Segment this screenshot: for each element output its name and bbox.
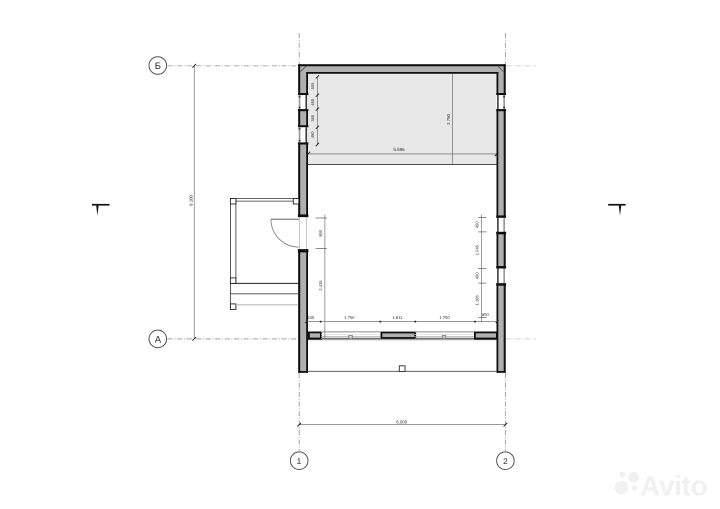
svg-text:365: 365 bbox=[310, 114, 315, 122]
svg-text:Avito: Avito bbox=[640, 470, 708, 501]
svg-text:5.596: 5.596 bbox=[393, 147, 405, 152]
svg-text:450: 450 bbox=[310, 131, 315, 139]
svg-text:1: 1 bbox=[297, 456, 302, 466]
svg-text:2: 2 bbox=[503, 456, 508, 466]
svg-text:435: 435 bbox=[307, 315, 315, 320]
svg-text:450: 450 bbox=[310, 98, 315, 106]
svg-text:8.100: 8.100 bbox=[188, 195, 193, 206]
svg-text:650: 650 bbox=[482, 312, 490, 317]
svg-text:А: А bbox=[155, 334, 162, 345]
svg-text:450: 450 bbox=[474, 272, 479, 280]
svg-text:1.750: 1.750 bbox=[439, 315, 450, 320]
svg-text:1.186: 1.186 bbox=[474, 294, 479, 305]
svg-text:2.426: 2.426 bbox=[318, 280, 323, 291]
svg-text:1.045: 1.045 bbox=[474, 244, 479, 255]
svg-text:605: 605 bbox=[310, 82, 315, 90]
svg-text:900: 900 bbox=[318, 229, 323, 237]
svg-text:1.750: 1.750 bbox=[344, 315, 355, 320]
svg-text:6.000: 6.000 bbox=[396, 419, 408, 424]
svg-text:Б: Б bbox=[155, 61, 161, 72]
svg-text:1.611: 1.611 bbox=[393, 315, 404, 320]
svg-text:450: 450 bbox=[474, 221, 479, 229]
svg-text:2.750: 2.750 bbox=[446, 114, 451, 125]
